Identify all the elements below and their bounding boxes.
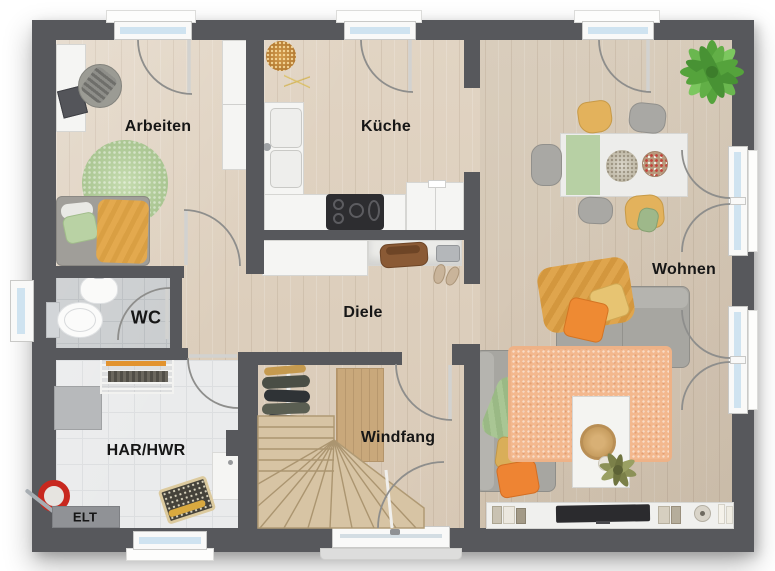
room-label-diele: Diele [343, 304, 382, 322]
room-label-kueche: Küche [361, 118, 411, 136]
overlay [0, 0, 775, 571]
door-leaves [167, 40, 648, 419]
room-label-elt: ELT [73, 510, 97, 525]
room-label-har-hwr: HAR/HWR [107, 442, 186, 460]
floor-plan: Arbeiten Küche Wohnen WC Diele HAR/HWR W… [0, 0, 775, 571]
room-label-wc: WC [131, 308, 161, 329]
coffee-table-plant [598, 451, 637, 489]
room-label-wohnen: Wohnen [652, 261, 716, 279]
room-label-arbeiten: Arbeiten [125, 118, 192, 136]
door-swing-arcs [118, 40, 730, 528]
potted-plant [680, 40, 744, 104]
room-label-windfang: Windfang [361, 429, 435, 447]
